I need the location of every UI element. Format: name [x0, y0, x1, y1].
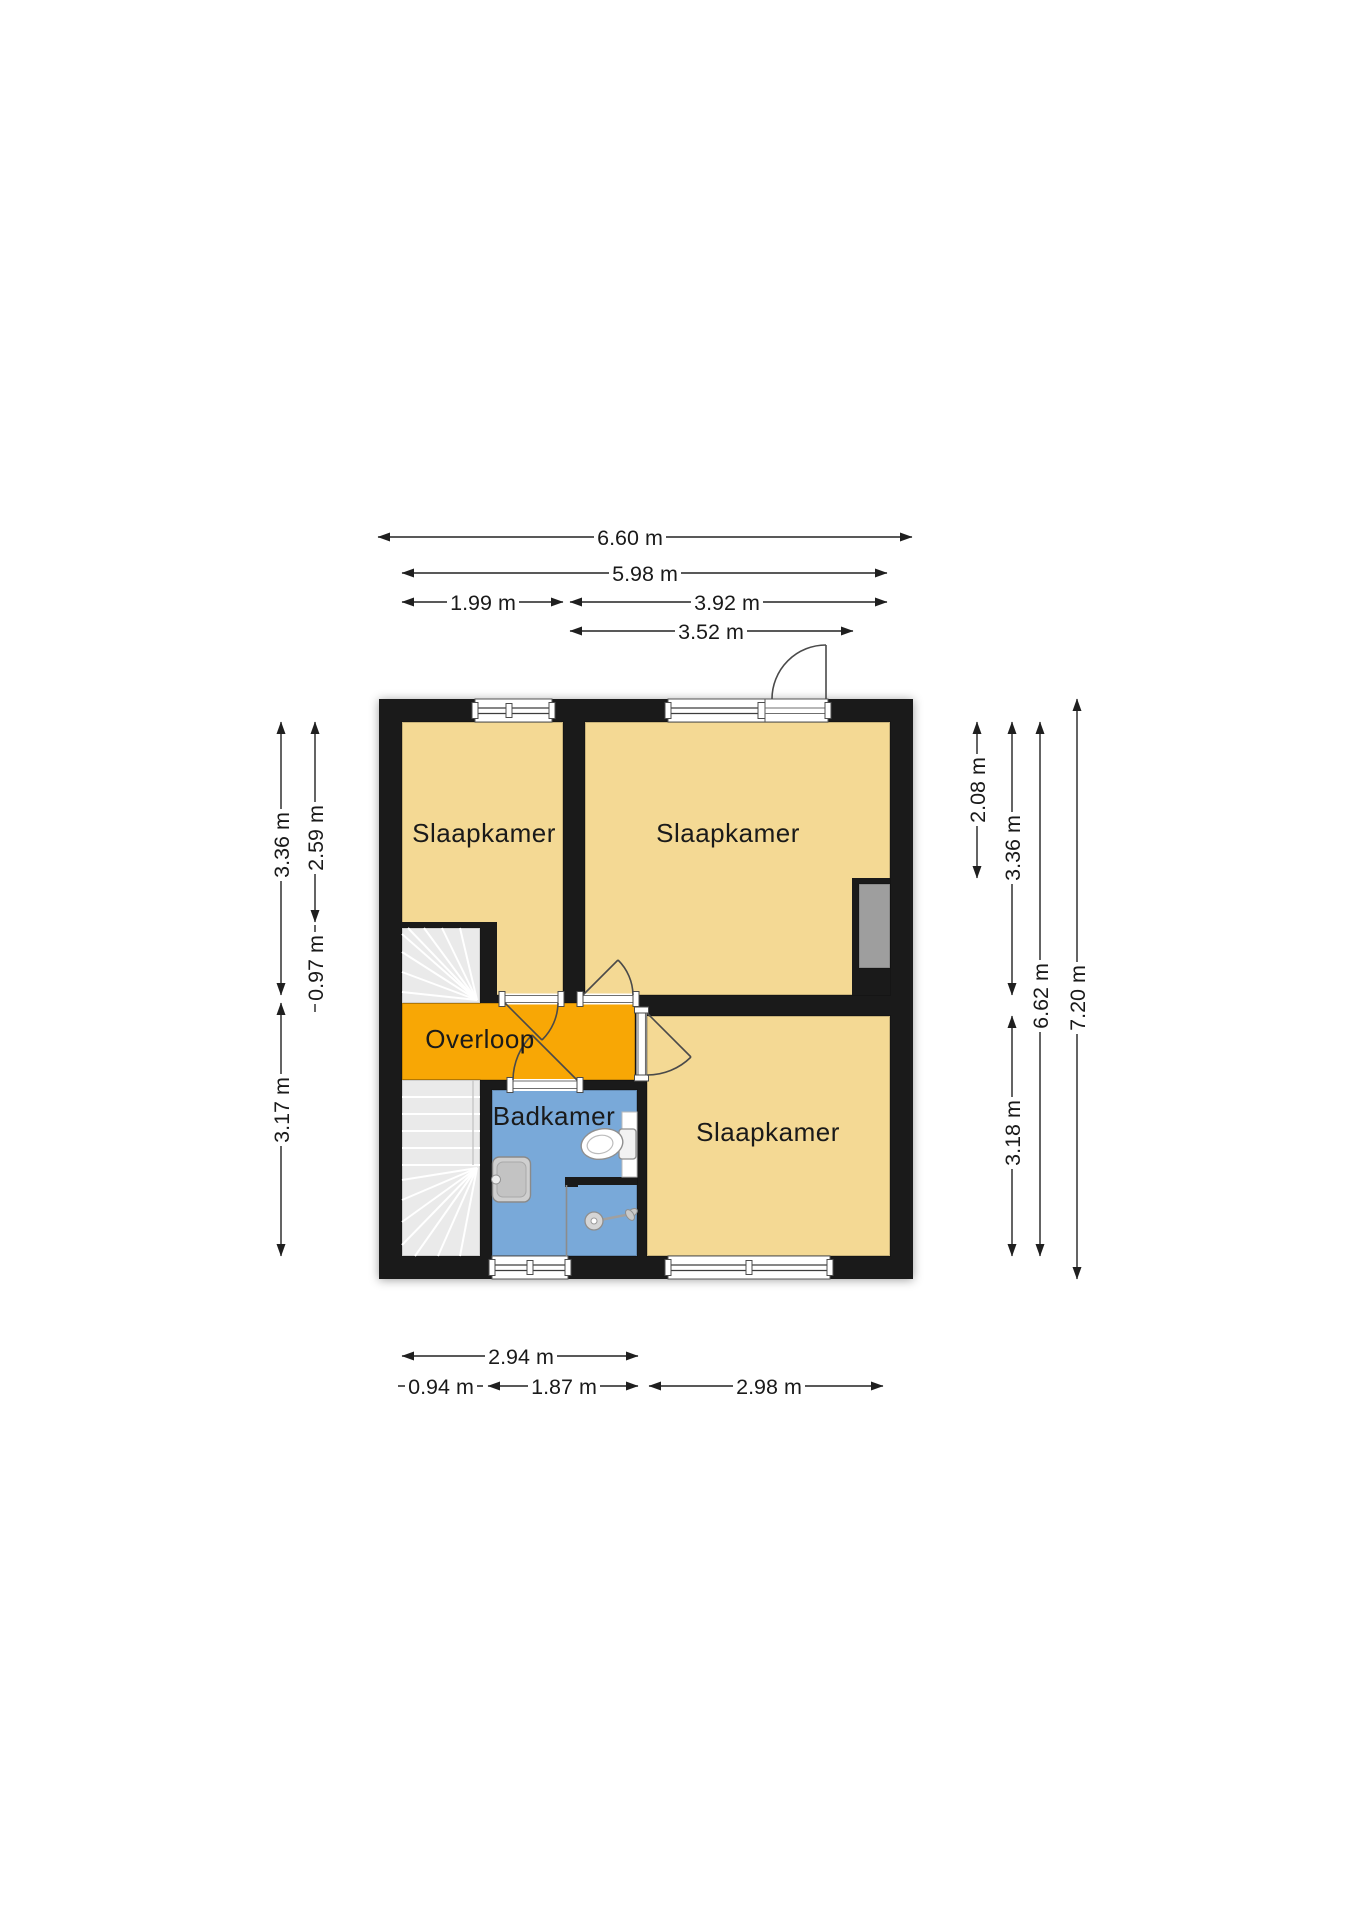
- label-bedroom-bottom: Slaapkamer: [696, 1117, 840, 1147]
- svg-text:2.94 m: 2.94 m: [488, 1345, 554, 1369]
- dim-right-336: 3.36 m: [1000, 722, 1025, 995]
- dim-right-208: 2.08 m: [965, 722, 990, 878]
- svg-text:2.08 m: 2.08 m: [966, 757, 990, 823]
- niche-shaft: [859, 884, 890, 968]
- dim-left-336: 3.36 m: [269, 722, 294, 995]
- dim-bottom-298: 2.98 m: [649, 1374, 883, 1399]
- label-bedroom-top-left: Slaapkamer: [412, 818, 556, 848]
- svg-text:3.36 m: 3.36 m: [1001, 815, 1025, 881]
- label-landing: Overloop: [425, 1024, 535, 1054]
- wall-stairs-top: [379, 922, 497, 928]
- svg-text:6.62 m: 6.62 m: [1029, 963, 1053, 1029]
- stairs-lower-flight: [402, 1080, 480, 1256]
- dim-left-317: 3.17 m: [269, 1003, 294, 1256]
- window-bedroom-top-right: [665, 699, 765, 722]
- dim-right-318: 3.18 m: [1000, 1016, 1025, 1256]
- washbasin: [492, 1157, 531, 1202]
- label-bathroom: Badkamer: [493, 1101, 616, 1131]
- svg-text:2.59 m: 2.59 m: [304, 805, 328, 871]
- window-bedroom-top-left: [472, 699, 555, 722]
- svg-text:3.52 m: 3.52 m: [678, 620, 744, 644]
- svg-text:6.60 m: 6.60 m: [597, 526, 663, 550]
- room-bedroom-top-right: [585, 722, 890, 995]
- dim-top-392: 3.92 m: [570, 590, 887, 615]
- dim-top-598: 5.98 m: [402, 561, 887, 586]
- label-bedroom-top-right: Slaapkamer: [656, 818, 800, 848]
- stairs-winder-upper: [402, 928, 480, 1003]
- dim-top-660: 6.60 m: [378, 525, 912, 550]
- wall-stairwell-right: [480, 922, 497, 1003]
- svg-text:0.94 m: 0.94 m: [408, 1375, 474, 1399]
- dim-left-259: 2.59 m: [303, 722, 328, 922]
- svg-text:0.97 m: 0.97 m: [304, 935, 328, 1001]
- svg-text:1.99 m: 1.99 m: [450, 591, 516, 615]
- dim-left-097: 0.97 m: [303, 925, 328, 1012]
- dim-bottom-294: 2.94 m: [402, 1344, 638, 1369]
- floorplan-page: Slaapkamer Slaapkamer Slaapkamer Overloo…: [0, 0, 1358, 1920]
- svg-text:3.92 m: 3.92 m: [694, 591, 760, 615]
- dim-bottom-094: 0.94 m: [398, 1374, 483, 1399]
- svg-text:3.36 m: 3.36 m: [270, 812, 294, 878]
- svg-text:7.20 m: 7.20 m: [1066, 965, 1090, 1031]
- dim-top-352: 3.52 m: [570, 619, 853, 644]
- dim-right-720: 7.20 m: [1065, 699, 1090, 1279]
- svg-text:3.17 m: 3.17 m: [270, 1077, 294, 1143]
- dim-bottom-187: 1.87 m: [488, 1374, 638, 1399]
- window-bathroom: [489, 1256, 571, 1279]
- window-bedroom-bottom: [665, 1256, 833, 1279]
- floorplan-drawing: Slaapkamer Slaapkamer Slaapkamer Overloo…: [0, 0, 1358, 1920]
- svg-text:1.87 m: 1.87 m: [531, 1375, 597, 1399]
- svg-text:3.18 m: 3.18 m: [1001, 1100, 1025, 1166]
- svg-text:2.98 m: 2.98 m: [736, 1375, 802, 1399]
- svg-text:5.98 m: 5.98 m: [612, 562, 678, 586]
- dim-top-199: 1.99 m: [402, 590, 563, 615]
- balcony-door: [765, 645, 831, 722]
- dim-right-662: 6.62 m: [1028, 722, 1053, 1256]
